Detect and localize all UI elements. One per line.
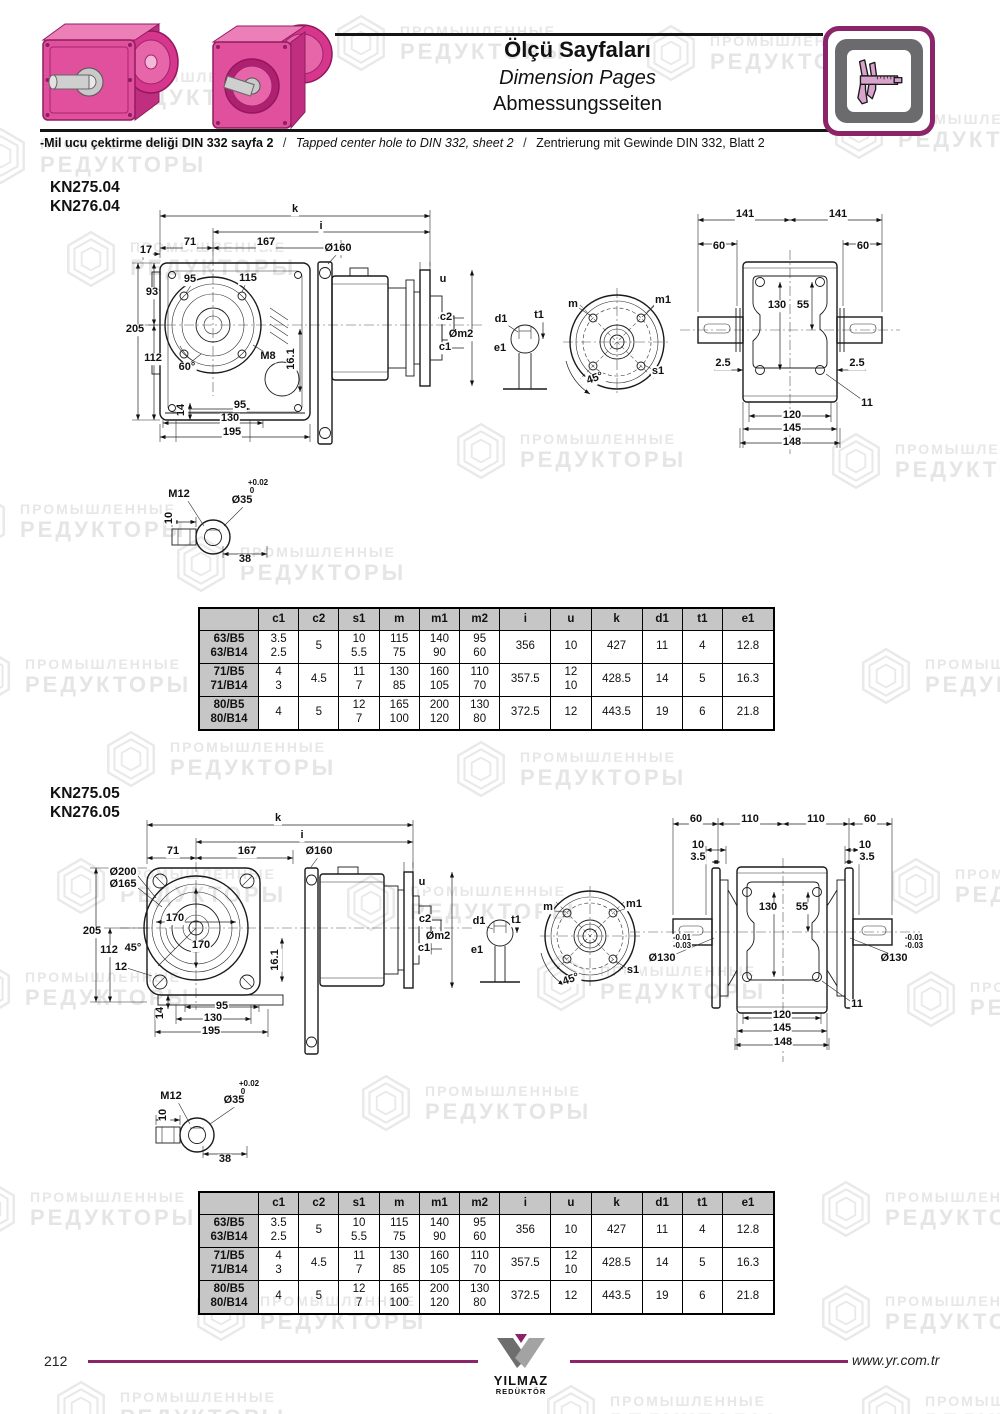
dim-label: 195 bbox=[201, 1026, 221, 1038]
table-header-cell: c2 bbox=[299, 1192, 339, 1215]
dim-label: 16.1 bbox=[270, 948, 282, 971]
value-cell: 428.5 bbox=[591, 664, 642, 697]
dim-label: 11 bbox=[850, 999, 864, 1011]
table-header-cell: e1 bbox=[723, 1192, 775, 1215]
dim-label: 14 bbox=[155, 1006, 167, 1020]
table-header-cell: m2 bbox=[460, 608, 500, 631]
dimension-table: c1c2s1mm1m2iukd1t1e163/B563/B143.52.5510… bbox=[198, 607, 775, 731]
dim-label: 45° bbox=[124, 943, 143, 955]
table-row: 71/B571/B14434.51171308516010511070357.5… bbox=[199, 1248, 774, 1281]
value-cell: 13080 bbox=[460, 697, 500, 731]
value-cell: 127 bbox=[339, 1281, 379, 1315]
drawing-kn275-04: ki7116717Ø160951159320511260°M816.114951… bbox=[120, 196, 920, 606]
value-cell: 4 bbox=[682, 1215, 722, 1248]
dim-label: Ø165 bbox=[109, 879, 138, 891]
value-cell: 12.8 bbox=[723, 631, 775, 664]
dim-label: 71 bbox=[183, 237, 197, 249]
dim-label: Ø130 bbox=[648, 953, 677, 965]
dim-label: 16.1 bbox=[286, 347, 298, 370]
dim-label: 148 bbox=[773, 1037, 793, 1049]
row-label-cell: 71/B571/B14 bbox=[199, 664, 259, 697]
dim-label: i bbox=[318, 221, 323, 233]
value-cell: 357.5 bbox=[500, 664, 551, 697]
value-cell: 105.5 bbox=[339, 1215, 379, 1248]
footer: 212 YILMAZ REDÜKTÖR www.yr.com.tr bbox=[0, 1340, 1000, 1410]
dim-label: 60° bbox=[178, 362, 197, 374]
value-cell: 427 bbox=[591, 631, 642, 664]
dim-label: 12 bbox=[114, 962, 128, 974]
dim-label: e1 bbox=[493, 343, 507, 355]
table-header-cell: m1 bbox=[419, 608, 459, 631]
dim-label: 145 bbox=[782, 423, 802, 435]
note-english: Tapped center hole to DIN 332, sheet 2 bbox=[296, 136, 514, 150]
dim-label: 38 bbox=[218, 1154, 232, 1166]
dim-label: d1 bbox=[472, 916, 487, 928]
dim-label: 55 bbox=[795, 902, 809, 914]
watermark: ПРОМЫШЛЕННЫЕРЕДУКТОРЫ bbox=[100, 728, 336, 790]
dim-label: Ø160 bbox=[305, 846, 334, 858]
value-cell: 356 bbox=[500, 1215, 551, 1248]
table-header-cell: i bbox=[500, 1192, 551, 1215]
value-cell: 14 bbox=[642, 664, 682, 697]
value-cell: 4 bbox=[259, 697, 299, 731]
dim-label: 120 bbox=[772, 1010, 792, 1022]
watermark: ПРОМЫШЛЕННЫЕРЕДУКТОРЫ bbox=[0, 1178, 196, 1240]
dim-label: 14 bbox=[176, 403, 188, 417]
table-header-cell: d1 bbox=[642, 608, 682, 631]
dim-label: s1 bbox=[626, 965, 640, 977]
dim-label: 3.5 bbox=[858, 852, 875, 864]
value-cell: 200120 bbox=[419, 697, 459, 731]
dim-label: 205 bbox=[125, 324, 145, 336]
value-cell: 11070 bbox=[460, 1248, 500, 1281]
dim-label: 195 bbox=[222, 427, 242, 439]
section1-model-heading: KN275.04 KN276.04 bbox=[50, 178, 120, 216]
value-cell: 3.52.5 bbox=[259, 631, 299, 664]
value-cell: 4.5 bbox=[299, 664, 339, 697]
note-german: Zentrierung mit Gewinde DIN 332, Blatt 2 bbox=[536, 136, 765, 150]
dim-label: Ø35 bbox=[223, 1095, 246, 1107]
page-title-turkish: Ölçü Sayfaları bbox=[335, 36, 820, 65]
dim-label: M12 bbox=[167, 489, 190, 501]
value-cell: 11 bbox=[642, 1215, 682, 1248]
watermark: ПРОМЫШЛЕННЫЕРЕДУКТОРЫ bbox=[815, 1282, 1000, 1344]
value-cell: 428.5 bbox=[591, 1248, 642, 1281]
dim-label: 115 bbox=[238, 273, 258, 285]
gearbox-photos bbox=[35, 12, 335, 138]
value-cell: 1210 bbox=[551, 1248, 591, 1281]
dim-label: 148 bbox=[782, 437, 802, 449]
dim-label: -0.03 bbox=[672, 942, 692, 950]
value-cell: 14 bbox=[642, 1248, 682, 1281]
dimension-table-1: c1c2s1mm1m2iukd1t1e163/B563/B143.52.5510… bbox=[198, 607, 775, 731]
dim-label: 130 bbox=[220, 413, 240, 425]
row-label-cell: 71/B571/B14 bbox=[199, 1248, 259, 1281]
dim-label: Ø200 bbox=[109, 867, 138, 879]
table-header-cell: m2 bbox=[460, 1192, 500, 1215]
value-cell: 117 bbox=[339, 664, 379, 697]
value-cell: 5 bbox=[299, 697, 339, 731]
drawing-kn275-05: ki71167Ø160Ø200Ø16517017020511245°1216.1… bbox=[80, 810, 920, 1180]
value-cell: 5 bbox=[299, 1281, 339, 1315]
value-cell: 19 bbox=[642, 1281, 682, 1315]
dim-label: 145 bbox=[772, 1023, 792, 1035]
row-label-cell: 80/B580/B14 bbox=[199, 697, 259, 731]
footer-url: www.yr.com.tr bbox=[852, 1352, 939, 1368]
dim-label: Ø130 bbox=[880, 953, 909, 965]
value-cell: 372.5 bbox=[500, 1281, 551, 1315]
yilmaz-logo-name: YILMAZ bbox=[478, 1374, 564, 1387]
row-label-cell: 80/B580/B14 bbox=[199, 1281, 259, 1315]
page-title-german: Abmessungsseiten bbox=[335, 91, 820, 117]
dim-label: 95 bbox=[183, 274, 197, 286]
gearbox-photo-1 bbox=[35, 12, 185, 134]
dim-label: c2 bbox=[439, 312, 453, 324]
value-cell: 5 bbox=[682, 1248, 722, 1281]
table-header-cell: m bbox=[379, 1192, 419, 1215]
dimension-table-2: c1c2s1mm1m2iukd1t1e163/B563/B143.52.5510… bbox=[198, 1191, 775, 1315]
dim-label: m bbox=[542, 902, 554, 914]
value-cell: 11575 bbox=[379, 1215, 419, 1248]
table-header-cell bbox=[199, 608, 259, 631]
value-cell: 13085 bbox=[379, 1248, 419, 1281]
dim-label: 130 bbox=[203, 1013, 223, 1025]
yilmaz-logo-sub: REDÜKTÖR bbox=[478, 1388, 564, 1396]
value-cell: 12 bbox=[551, 1281, 591, 1315]
watermark: ПРОМЫШЛЕННЫЕРЕДУКТОРЫ bbox=[450, 738, 686, 800]
dim-label: 110 bbox=[740, 814, 760, 826]
table-row: 71/B571/B14434.51171308516010511070357.5… bbox=[199, 664, 774, 697]
value-cell: 443.5 bbox=[591, 697, 642, 731]
dim-label: 11 bbox=[860, 398, 874, 410]
dim-label: 167 bbox=[256, 237, 276, 249]
value-cell: 11 bbox=[642, 631, 682, 664]
value-cell: 11575 bbox=[379, 631, 419, 664]
value-cell: 105.5 bbox=[339, 631, 379, 664]
table-header-cell: k bbox=[591, 608, 642, 631]
page-title-english: Dimension Pages bbox=[335, 65, 820, 91]
dim-label: d1 bbox=[494, 314, 509, 326]
value-cell: 16.3 bbox=[723, 664, 775, 697]
table-header-cell: k bbox=[591, 1192, 642, 1215]
title-block: Ölçü Sayfaları Dimension Pages Abmessung… bbox=[335, 36, 820, 117]
dim-label: u bbox=[439, 274, 448, 286]
dim-label: 112 bbox=[99, 945, 119, 957]
dim-label: t1 bbox=[533, 310, 545, 322]
value-cell: 357.5 bbox=[500, 1248, 551, 1281]
value-cell: 12 bbox=[551, 697, 591, 731]
row-label-cell: 63/B563/B14 bbox=[199, 1215, 259, 1248]
table-header-cell: m1 bbox=[419, 1192, 459, 1215]
value-cell: 4 bbox=[682, 631, 722, 664]
dim-label: -0.03 bbox=[904, 942, 924, 950]
dim-label: s1 bbox=[651, 366, 665, 378]
value-cell: 6 bbox=[682, 697, 722, 731]
value-cell: 427 bbox=[591, 1215, 642, 1248]
value-cell: 9560 bbox=[460, 1215, 500, 1248]
value-cell: 5 bbox=[299, 1215, 339, 1248]
value-cell: 10 bbox=[551, 631, 591, 664]
dim-label: 71 bbox=[166, 846, 180, 858]
value-cell: 9560 bbox=[460, 631, 500, 664]
value-cell: 165100 bbox=[379, 697, 419, 731]
value-cell: 200120 bbox=[419, 1281, 459, 1315]
footer-rule-left bbox=[88, 1360, 478, 1363]
note-line: -Mil ucu çektirme deliği DIN 332 sayfa 2… bbox=[40, 136, 960, 150]
dim-label: Ø35 bbox=[231, 495, 254, 507]
value-cell: 19 bbox=[642, 697, 682, 731]
value-cell: 1210 bbox=[551, 664, 591, 697]
table-header-cell: e1 bbox=[723, 608, 775, 631]
value-cell: 4 bbox=[259, 1281, 299, 1315]
table-row: 80/B580/B144512716510020012013080372.512… bbox=[199, 1281, 774, 1315]
page-number: 212 bbox=[44, 1353, 67, 1369]
dim-label: 167 bbox=[237, 846, 257, 858]
value-cell: 165100 bbox=[379, 1281, 419, 1315]
gearbox-photo-2 bbox=[185, 12, 335, 138]
yilmaz-logo-mark bbox=[490, 1334, 552, 1368]
dim-label: 10 bbox=[164, 511, 176, 525]
value-cell: 13080 bbox=[460, 1281, 500, 1315]
dim-label: 60 bbox=[863, 814, 877, 826]
dim-label: 10 bbox=[158, 1108, 170, 1122]
dim-label: Øm2 bbox=[448, 329, 474, 341]
value-cell: 372.5 bbox=[500, 697, 551, 731]
caliper-icon bbox=[851, 54, 907, 108]
dim-label: 2.5 bbox=[848, 358, 865, 370]
value-cell: 43 bbox=[259, 664, 299, 697]
value-cell: 5 bbox=[299, 631, 339, 664]
value-cell: 160105 bbox=[419, 664, 459, 697]
dim-label: m bbox=[567, 299, 579, 311]
table-header-cell: s1 bbox=[339, 608, 379, 631]
yilmaz-logo: YILMAZ REDÜKTÖR bbox=[478, 1334, 564, 1396]
dim-label: 141 bbox=[735, 209, 755, 221]
value-cell: 21.8 bbox=[723, 1281, 775, 1315]
value-cell: 14090 bbox=[419, 1215, 459, 1248]
dim-label: c2 bbox=[418, 914, 432, 926]
dim-label: c1 bbox=[417, 943, 431, 955]
dim-label: 60 bbox=[712, 241, 726, 253]
dim-label: 55 bbox=[796, 300, 810, 312]
dim-label: 120 bbox=[782, 410, 802, 422]
dim-label: e1 bbox=[470, 945, 484, 957]
value-cell: 356 bbox=[500, 631, 551, 664]
dim-label: 10 bbox=[858, 840, 872, 852]
dim-label: 95 bbox=[215, 1001, 229, 1013]
table-header-cell: c1 bbox=[259, 608, 299, 631]
value-cell: 11070 bbox=[460, 664, 500, 697]
dim-label: 38 bbox=[238, 554, 252, 566]
dim-label: 141 bbox=[828, 209, 848, 221]
value-cell: 12.8 bbox=[723, 1215, 775, 1248]
dim-label: M8 bbox=[259, 351, 276, 363]
dim-label: M12 bbox=[159, 1091, 182, 1103]
watermark: ПРОМЫШЛЕННЫЕРЕДУКТОРЫ bbox=[0, 645, 191, 707]
table-row: 63/B563/B143.52.55105.511575140909560356… bbox=[199, 631, 774, 664]
dim-label: 2.5 bbox=[714, 358, 731, 370]
dim-label: 112 bbox=[143, 353, 163, 365]
dim-label: 130 bbox=[767, 300, 787, 312]
dim-label: 170 bbox=[191, 940, 211, 952]
caliper-icon-box bbox=[823, 26, 935, 136]
value-cell: 21.8 bbox=[723, 697, 775, 731]
dim-label: 60 bbox=[856, 241, 870, 253]
dim-label: Øm2 bbox=[425, 931, 451, 943]
catalog-page: ПРОМЫШЛЕННЫЕРЕДУКТОРЫПРОМЫШЛЕННЫЕРЕДУКТО… bbox=[0, 0, 1000, 1414]
watermark: ПРОМЫШЛЕННЫЕРЕДУКТОРЫ bbox=[815, 1178, 1000, 1240]
dim-label: 93 bbox=[145, 287, 159, 299]
table-row: 80/B580/B144512716510020012013080372.512… bbox=[199, 697, 774, 731]
dim-label: 3.5 bbox=[689, 852, 706, 864]
value-cell: 16.3 bbox=[723, 1248, 775, 1281]
dim-label: k bbox=[274, 813, 282, 825]
dim-label: m1 bbox=[625, 899, 643, 911]
value-cell: 13085 bbox=[379, 664, 419, 697]
table-header-cell: u bbox=[551, 608, 591, 631]
dim-label: 95 bbox=[233, 400, 247, 412]
dim-label: t1 bbox=[510, 915, 522, 927]
value-cell: 127 bbox=[339, 697, 379, 731]
dimension-table: c1c2s1mm1m2iukd1t1e163/B563/B143.52.5510… bbox=[198, 1191, 775, 1315]
footer-rule-right bbox=[570, 1360, 848, 1363]
dim-label: 110 bbox=[806, 814, 826, 826]
dim-label: m1 bbox=[654, 295, 672, 307]
value-cell: 14090 bbox=[419, 631, 459, 664]
value-cell: 6 bbox=[682, 1281, 722, 1315]
dim-label: 170 bbox=[165, 913, 185, 925]
value-cell: 443.5 bbox=[591, 1281, 642, 1315]
table-row: 63/B563/B143.52.55105.511575140909560356… bbox=[199, 1215, 774, 1248]
value-cell: 160105 bbox=[419, 1248, 459, 1281]
value-cell: 10 bbox=[551, 1215, 591, 1248]
dim-label: 205 bbox=[82, 926, 102, 938]
table-header-cell: c2 bbox=[299, 608, 339, 631]
dim-label: u bbox=[418, 877, 427, 889]
row-label-cell: 63/B563/B14 bbox=[199, 631, 259, 664]
value-cell: 43 bbox=[259, 1248, 299, 1281]
table-header-cell bbox=[199, 1192, 259, 1215]
table-header-cell: s1 bbox=[339, 1192, 379, 1215]
dim-label: k bbox=[291, 204, 299, 216]
dim-label: 60 bbox=[689, 814, 703, 826]
dim-label: i bbox=[299, 830, 304, 842]
value-cell: 4.5 bbox=[299, 1248, 339, 1281]
value-cell: 3.52.5 bbox=[259, 1215, 299, 1248]
dim-label: c1 bbox=[438, 342, 452, 354]
table-header-cell: i bbox=[500, 608, 551, 631]
dim-label: 10 bbox=[691, 840, 705, 852]
table-header-cell: d1 bbox=[642, 1192, 682, 1215]
table-header-cell: t1 bbox=[682, 1192, 722, 1215]
value-cell: 5 bbox=[682, 664, 722, 697]
table-header-cell: m bbox=[379, 608, 419, 631]
note-turkish: -Mil ucu çektirme deliği DIN 332 sayfa 2 bbox=[40, 136, 273, 150]
dim-label: Ø160 bbox=[324, 243, 353, 255]
dim-label: 17 bbox=[139, 245, 153, 257]
dim-label: 130 bbox=[758, 902, 778, 914]
caliper-icon-frame bbox=[835, 39, 923, 123]
table-header-cell: u bbox=[551, 1192, 591, 1215]
value-cell: 117 bbox=[339, 1248, 379, 1281]
table-header-cell: c1 bbox=[259, 1192, 299, 1215]
watermark: ПРОМЫШЛЕННЫЕРЕДУКТОРЫ bbox=[855, 645, 1000, 707]
table-header-cell: t1 bbox=[682, 608, 722, 631]
